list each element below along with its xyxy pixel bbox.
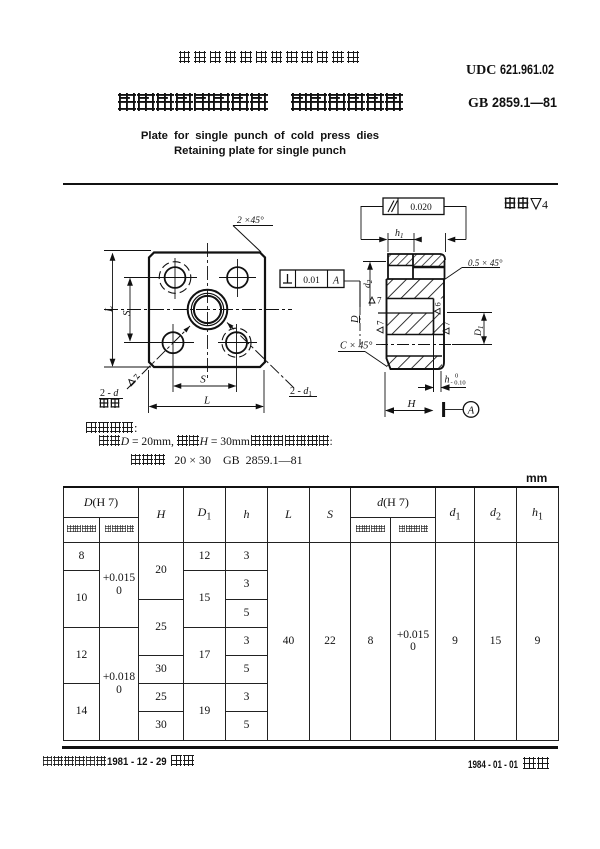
svg-text:h: h bbox=[445, 375, 450, 386]
svg-text:S: S bbox=[200, 374, 206, 386]
svg-text:S: S bbox=[121, 310, 133, 316]
svg-text:7: 7 bbox=[377, 296, 382, 306]
svg-text:7: 7 bbox=[376, 320, 386, 325]
svg-text:H: H bbox=[407, 398, 417, 410]
svg-text:2 ×45°: 2 ×45° bbox=[237, 215, 264, 226]
svg-text:A: A bbox=[332, 276, 340, 287]
svg-text:2 - d: 2 - d bbox=[100, 388, 119, 399]
svg-text:D1: D1 bbox=[474, 326, 485, 337]
svg-text:L: L bbox=[203, 395, 210, 407]
svg-text:h1: h1 bbox=[395, 228, 404, 240]
svg-text:0.020: 0.020 bbox=[410, 203, 432, 213]
svg-text:4: 4 bbox=[542, 198, 548, 212]
svg-text:0: 0 bbox=[455, 373, 458, 380]
svg-text:6: 6 bbox=[433, 302, 443, 306]
svg-text:d2: d2 bbox=[363, 279, 374, 288]
svg-text:0.01: 0.01 bbox=[303, 276, 320, 286]
svg-text:7: 7 bbox=[442, 321, 452, 326]
svg-text:A: A bbox=[467, 405, 475, 416]
svg-text:0.5 × 45°: 0.5 × 45° bbox=[468, 258, 503, 268]
svg-text:- 0.10: - 0.10 bbox=[451, 380, 466, 387]
svg-text:D: D bbox=[350, 315, 361, 324]
svg-text:C × 45°: C × 45° bbox=[340, 341, 372, 352]
svg-text:L: L bbox=[103, 306, 115, 313]
